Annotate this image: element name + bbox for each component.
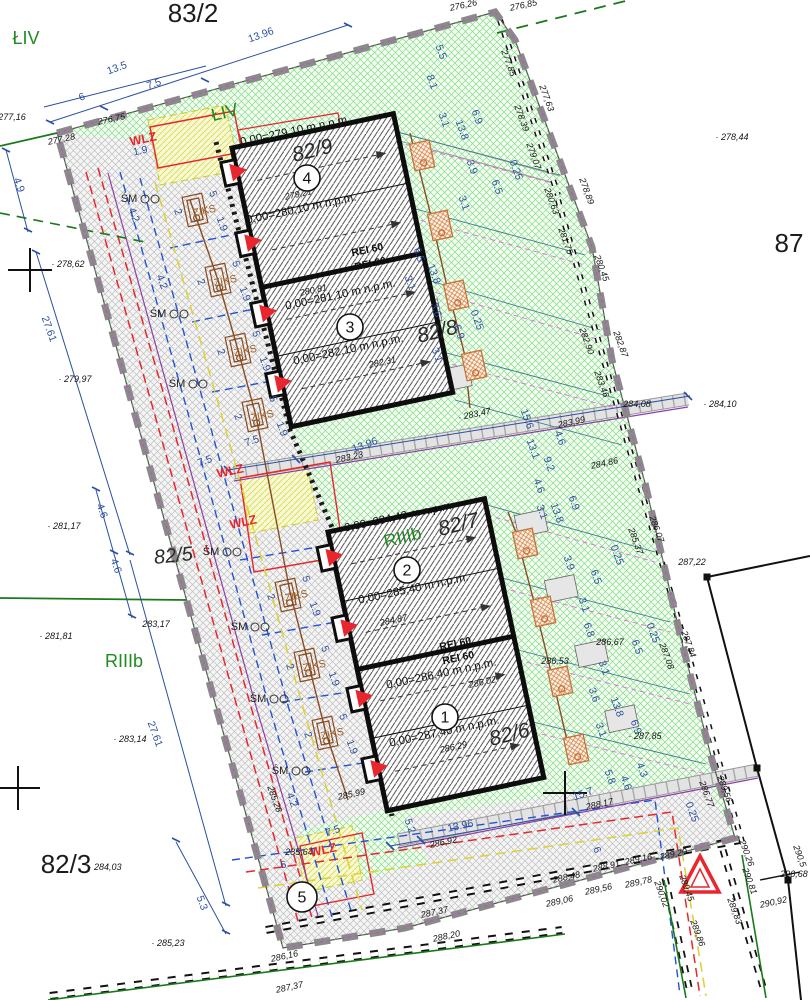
dimension-label-3: 13.96 xyxy=(247,25,276,45)
sm-label-6: ŚM xyxy=(272,764,289,777)
spot-elevation-50: 286,16 xyxy=(269,948,299,964)
building-number-1: 1 xyxy=(441,710,450,727)
dimension-label-7: 4.6 xyxy=(108,557,124,575)
spot-elevation-25: 284,08 xyxy=(622,399,651,409)
spot-elevation-62: 289,45 xyxy=(677,872,696,903)
building-number-3: 3 xyxy=(346,320,355,337)
site-plan-canvas: 83/282/982/88782/782/682/582/3ŁIVŁIVRIII… xyxy=(0,0,810,1000)
sm-label-2: ŚM xyxy=(169,377,186,390)
dimension-label-1: 7.5 xyxy=(145,76,163,92)
spot-elevation-34: 286,67 xyxy=(595,637,625,647)
spot-elevation-69: 290,92 xyxy=(758,894,788,910)
building-number-5: 5 xyxy=(298,890,307,907)
parcel-label-82-3: 82/3 xyxy=(41,849,92,879)
spot-elevation-26: · 284,10 xyxy=(703,399,736,409)
sm-label-5: ŚM xyxy=(250,692,267,705)
dimension-label-5: 27.61 xyxy=(39,315,59,344)
spot-elevation-12: · 284,03 xyxy=(88,862,121,872)
soil-class-label-2: RIIIb xyxy=(105,651,143,671)
spot-elevation-27: 287,22 xyxy=(677,557,706,567)
dimension-label-4: 4.9 xyxy=(11,176,27,194)
spot-elevation-66: 290,26 xyxy=(737,837,756,867)
spot-elevation-51: 287,37 xyxy=(274,979,305,995)
spot-elevation-54: 289,06 xyxy=(544,893,574,909)
spot-elevation-37: 286,53 xyxy=(540,656,569,666)
sm-label-1: ŚM xyxy=(150,307,167,320)
dimension-label-6: 4.6 xyxy=(94,502,110,520)
spot-elevation-55: 289,56 xyxy=(583,881,613,897)
spot-elevation-5: · 278,62 xyxy=(51,259,84,269)
sm-label-0: ŚM xyxy=(121,192,138,205)
spot-elevation-19: 278,89 xyxy=(577,175,596,205)
spot-elevation-10: 283,17 xyxy=(141,619,171,629)
sm-label-4: ŚM xyxy=(231,620,248,633)
soil-class-label-0: ŁIV xyxy=(12,28,39,48)
dimension-label-9: 5.3 xyxy=(194,894,210,912)
parcel-label-87: 87 xyxy=(775,228,804,258)
building-number-4: 4 xyxy=(303,171,312,188)
spot-elevation-9: · 281,81 xyxy=(39,631,72,641)
spot-elevation-70: 290,5 xyxy=(791,843,809,869)
spot-elevation-11: · 283,14 xyxy=(113,734,146,744)
parcel-label-83-2: 83/2 xyxy=(168,0,219,28)
sm-label-3: ŚM xyxy=(203,545,220,558)
spot-elevation-4: 276,85 xyxy=(508,0,539,13)
building-number-2: 2 xyxy=(403,563,412,580)
spot-elevation-7: · 279,97 xyxy=(58,374,92,384)
spot-elevation-67: 290,81 xyxy=(740,865,759,895)
spot-elevation-6: · 278,44 xyxy=(715,132,748,142)
spot-elevation-13: · 285,23 xyxy=(151,938,184,948)
parcel-label-82-5: 82/5 xyxy=(153,543,195,569)
spot-elevation-38: · 287,85 xyxy=(628,731,662,741)
site-plan-drawing: 83/282/982/88782/782/682/582/3ŁIVŁIVRIII… xyxy=(0,0,810,1000)
spot-elevation-3: 276,26 xyxy=(448,0,478,13)
dimension-label-2: 13.5 xyxy=(105,59,128,77)
spot-elevation-71: 290,68 xyxy=(779,869,808,879)
dimension-label-0: 6 xyxy=(77,90,87,103)
spot-elevation-8: · 281,17 xyxy=(47,521,81,531)
spot-elevation-0: 277,16 xyxy=(0,112,26,122)
spot-elevation-60: 289,78 xyxy=(623,874,653,890)
dimension-label-8: 27.61 xyxy=(145,720,165,749)
